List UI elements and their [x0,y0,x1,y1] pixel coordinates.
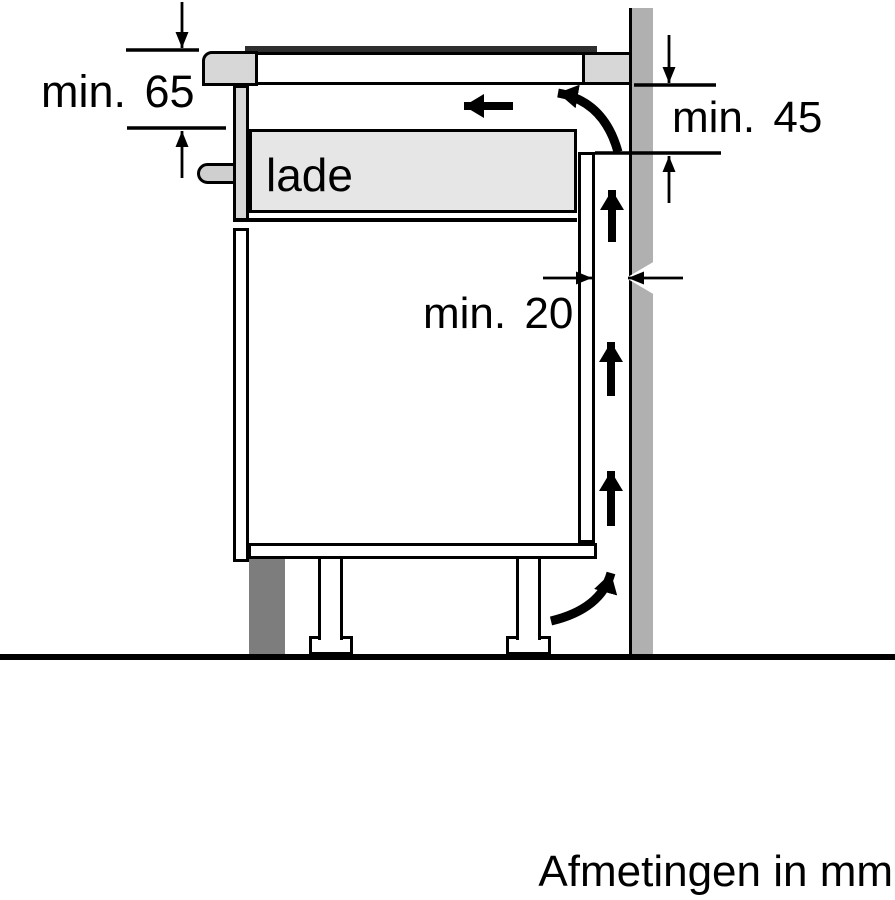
drawer-label: lade [266,152,353,198]
foot-left-stem [318,557,343,640]
hob-front-edge [202,51,258,86]
cabinet-bottom-panel [248,543,597,559]
airflow-curve-bottom [551,573,611,621]
hob-body [255,52,633,85]
hob-rear-edge [582,52,632,85]
dim-label-min45: min. 45 [672,96,822,140]
worktop-front-strip [233,85,249,222]
drawer-handle [197,163,236,184]
cabinet-divider-panel [233,218,577,222]
installation-diagram: min. 65 min. 45 min. 20 lade Afmetingen … [0,0,895,900]
wall [629,8,653,654]
cabinet-front-panel [233,228,249,562]
dim-label-min65: min. 65 [41,69,195,114]
dim-label-min20: min. 20 [423,292,573,336]
cabinet-back-panel [578,152,595,543]
footer-note: Afmetingen in mm [538,850,893,894]
floor-line [0,654,895,660]
plinth-panel [249,558,285,655]
foot-right-stem [516,557,541,640]
